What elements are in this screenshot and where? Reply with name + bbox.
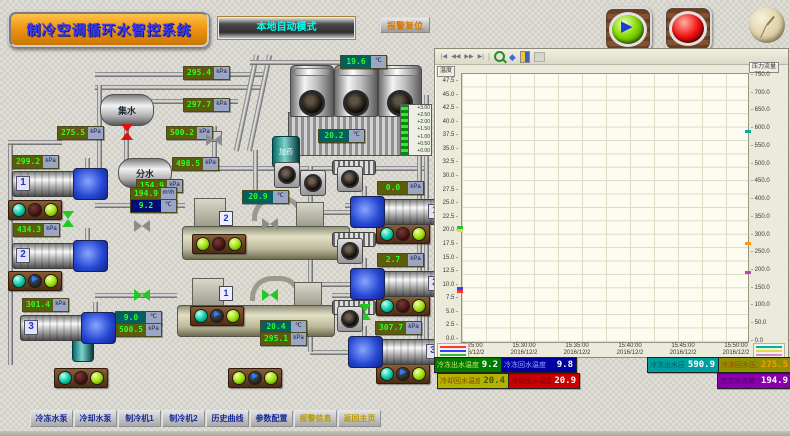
green-valve-icon[interactable] [62,211,74,227]
status-bar: 冷冻出水压力590.9 [647,357,719,373]
y-left-tick: 35.0 [436,146,458,153]
red-valve-icon[interactable] [121,124,133,140]
y-right-tick: 150.0 [751,285,781,292]
gray-valve-icon[interactable] [206,134,222,146]
gauge-tick: +3.00 [410,106,430,111]
status-bar: 冷冻回水温度9.8 [501,357,577,373]
display-unit: kPa [43,156,58,168]
tick-time: 15:40:00 [608,343,652,350]
display-value: 297.7 [184,99,214,111]
y-left-tick: 37.5 [436,132,458,139]
running-icon [396,367,410,381]
status-lamp-teal [12,274,26,288]
value-display: 299.2kPa [12,155,59,169]
tick-time: 15:50:00 [714,343,758,350]
y-left-tick: 42.5 [436,105,458,112]
status-bar-row1: 冷冻出水温度9.2冷冻回水温度9.8冷冻出水压力590.9冷冻回水压力275.5 [434,357,790,372]
distributor-tank-label: 分水 [136,167,154,180]
y-right-tick: 750.0 [751,72,781,79]
status-lamp-teal [380,299,394,313]
nav-button-2[interactable]: 冷却水泵 [74,410,117,427]
y-left-axis-label: 温度 [437,66,455,77]
pipe [95,72,263,77]
mode-display: 本地自动模式 [218,17,355,39]
window-bottom-edge [0,431,790,436]
display-value: 307.7 [376,322,406,334]
indicator-lights [376,364,430,384]
indicator-lights [192,234,246,254]
first-record-icon[interactable]: |◀ [441,52,447,62]
page-title: 制冷空调循环水智控系统 [27,20,192,40]
trend-chart-panel: |◀ ◀◀ ▶▶ ▶| | ◆ 温度 压力流量 47.545.042.540.0… [434,48,789,358]
value-display: 9.2℃ [130,199,177,213]
display-unit: kPa [214,67,229,79]
value-display: 0.0kPa [377,181,424,195]
display-unit: ℃ [371,56,386,68]
pump-head [73,240,108,272]
y-left-tick: 25.0 [436,200,458,207]
display-value: 275.5 [58,127,88,139]
legend-series-stripe [756,354,782,356]
gauge-tick: +1.50 [410,127,430,132]
nav-button-8[interactable]: 返回主页 [338,410,381,427]
y-left-tick: 20.0 [436,227,458,234]
display-value: 299.2 [13,156,43,168]
value-display: 2.7kPa [377,253,424,267]
display-value: 20.2 [319,130,349,142]
display-unit: kPa [408,182,423,194]
play-icon [609,12,647,47]
display-unit: kPa [53,299,68,311]
nav-button-4[interactable]: 制冷机2 [162,410,205,427]
y-right-tick: 250.0 [751,249,781,256]
y-right-tick: 400.0 [751,196,781,203]
display-value: 20.9 [243,191,273,203]
pipe [8,140,62,145]
status-bar-value: 20.4 [480,376,508,386]
process-diagram: +3.00+2.50+2.00+1.50+1.00+0.50+0.00 集水 分… [0,46,434,406]
tick-time: 15:30:00 [502,343,546,350]
status-bar-value: 590.9 [685,360,718,370]
nav-button-3[interactable]: 制冷机1 [118,410,161,427]
status-bar-label: 冷却出水温度 [509,376,551,386]
display-value: 295.4 [184,67,214,79]
status-bar-value: 9.2 [479,360,501,370]
hmi-screen: 制冷空调循环水智控系统 本地自动模式 报警复位 [0,0,790,436]
pump-head [350,268,385,300]
status-lamp-dark [28,203,42,217]
legend-series-stripe [756,346,782,348]
status-lamp-green [44,203,58,217]
series-current-marker [457,290,463,293]
tick-time: 15:35:00 [555,343,599,350]
y-left-tick: 17.5 [436,241,458,248]
green-valve-icon[interactable] [134,289,150,301]
basin-level-gauge: +3.00+2.50+2.00+1.50+1.00+0.50+0.00 [400,104,432,156]
y-right-tick: 500.0 [751,161,781,168]
series-current-marker [745,130,751,133]
status-bar: 冷却回水温度20.4 [437,373,509,389]
chiller2-panel [296,202,324,228]
stop-button[interactable] [664,6,712,51]
y-left-tick: 45.0 [436,92,458,99]
x-axis-tick: 15:30:002016/12/2 [502,343,546,356]
value-display: 19.6℃ [340,55,387,69]
pump-3[interactable]: 3 [348,336,444,366]
status-lamp-green [196,237,210,251]
series-current-marker [457,287,463,290]
status-bar-label: 冷冻水流量 [718,376,758,386]
gauge-tick: +2.50 [410,113,430,118]
y-left-tick: 32.5 [436,159,458,166]
value-display: 301.4kPa [22,298,69,312]
display-unit: kPa [44,224,59,236]
legend-series-stripe [756,350,782,352]
indicator-lights [376,224,430,244]
display-unit: kPa [406,322,421,334]
fan-motor-icon [274,162,300,188]
y-left-tick: 5.0 [436,309,458,316]
green-valve-icon[interactable] [262,289,278,301]
value-display: 20.9℃ [242,190,289,204]
status-bar-value: 194.9 [758,376,790,386]
status-lamp-green [226,309,240,323]
series-current-marker [457,229,463,232]
fan-motor-icon [337,306,363,332]
running-icon [28,274,42,288]
start-button[interactable] [604,7,652,52]
y-left-tick: 7.5 [436,295,458,302]
indicator-lights [8,271,62,291]
x-axis-tick: 15:35:002016/12/2 [555,343,599,356]
x-axis-tick: 15:40:002016/12/2 [608,343,652,356]
toolbar-separator: | [488,52,490,61]
pump-head [350,196,385,228]
indicator-lights [8,200,62,220]
display-unit: kPa [408,254,423,266]
nav-button-7[interactable]: 报警信息 [294,410,337,427]
display-value: 500.2 [167,127,197,139]
status-lamp-teal [194,309,208,323]
y-left-tick: 10.0 [436,282,458,289]
collector-tank-label: 集水 [118,104,136,117]
display-unit: kPa [214,99,229,111]
status-bar-label: 冷冻回水温度 [502,360,554,370]
series-current-marker [745,271,751,274]
tick-date: 2016/12/2 [661,350,705,356]
copy-icon [534,52,545,62]
pump-head [73,168,108,200]
chiller1-number: 1 [219,286,233,301]
dosing-tank-label: 加药 [279,147,293,157]
collector-tank[interactable]: 集水 [100,94,154,126]
status-bar-row2: 冷却回水温度20.4冷却出水温度20.9冷冻水流量194.9 [434,373,790,388]
status-lamp-green [90,371,104,385]
display-unit: kPa [146,324,161,336]
clock [749,7,785,43]
gauge-tick: +2.00 [410,120,430,125]
y-left-tick: 22.5 [436,214,458,221]
display-value: 19.6 [341,56,371,68]
tick-date: 2016/12/2 [502,350,546,356]
y-left-tick: 15.0 [436,255,458,262]
status-lamp-teal [380,367,394,381]
pump-2[interactable]: 2 [350,268,446,298]
legend-icon[interactable] [520,51,530,63]
status-lamp-teal [12,203,26,217]
display-value: 498.5 [173,158,203,170]
nav-button-5[interactable]: 历史曲线 [206,410,249,427]
y-right-tick: 700.0 [751,90,781,97]
status-lamp-green [44,274,58,288]
y-left-tick: 12.5 [436,268,458,275]
y-right-tick: 450.0 [751,178,781,185]
alarm-reset-button[interactable]: 报警复位 [380,17,430,33]
fan-icon [299,90,325,116]
pipe [95,85,263,90]
chiller2-number: 2 [219,211,233,226]
fan-motor-icon [300,170,326,196]
fan-icon [343,90,369,116]
status-lamp-teal [58,371,72,385]
indicator-lights [190,306,244,326]
nav-button-1[interactable]: 冷冻水泵 [30,410,73,427]
display-value: 434.3 [14,224,44,236]
status-bar-label: 冷却回水温度 [438,376,480,386]
legend-series-stripe [440,354,466,356]
stop-icon [669,11,707,46]
gauge-tick: +1.00 [410,135,430,140]
tick-date: 2016/12/2 [608,350,652,356]
fan-motor-icon [337,238,363,264]
gauge-tick: +0.50 [410,142,430,147]
rewind-icon[interactable]: ◀◀ [451,52,460,62]
app-title-banner: 制冷空调循环水智控系统 [8,11,210,48]
indicator-lights [376,296,430,316]
value-display: 20.2℃ [318,129,365,143]
status-bar: 冷冻水流量194.9 [717,373,790,389]
pump-1[interactable]: 1 [350,196,446,226]
pump-number: 1 [16,176,30,191]
status-bar-value: 9.8 [554,360,576,370]
y-right-tick: 600.0 [751,125,781,132]
tick-date: 2016/12/2 [555,350,599,356]
status-bar: 冷冻出水温度9.2 [434,357,502,373]
status-lamp-green [264,371,278,385]
y-right-tick: 200.0 [751,267,781,274]
gauge-tick: +0.00 [410,149,430,154]
status-bar-label: 冷冻回水压力 [719,360,758,370]
status-lamp-green [412,299,426,313]
series-current-marker [745,242,751,245]
y-right-tick: 350.0 [751,214,781,221]
status-lamp-green [412,227,426,241]
status-bar-value: 275.5 [758,360,790,370]
status-bar-label: 冷冻出水温度 [435,360,479,370]
status-bar: 冷冻回水压力275.5 [718,357,790,373]
value-display: 295.1kPa [260,332,307,346]
pump-2[interactable]: 2 [12,240,108,270]
display-value: 295.1 [261,333,291,345]
cooling-tower-2[interactable] [334,65,378,117]
plot-area[interactable] [461,73,749,343]
value-display: 275.5kPa [57,126,104,140]
pump-1[interactable]: 1 [12,168,108,198]
display-unit: kPa [203,158,218,170]
y-left-tick: 47.5 [436,78,458,85]
chart-toolbar: |◀ ◀◀ ▶▶ ▶| | ◆ [435,49,788,65]
y-right-tick: 100.0 [751,302,781,309]
forward-icon[interactable]: ▶▶ [464,52,473,62]
pump-3[interactable]: 3 [20,312,116,342]
last-record-icon[interactable]: ▶| [478,52,484,62]
display-value: 2.7 [378,254,408,266]
status-lamp-dark [74,371,88,385]
fan-motor-icon [337,166,363,192]
legend-series-stripe [440,350,466,352]
display-value: 9.2 [131,200,161,212]
y-left-tick: 40.0 [436,119,458,126]
display-value: 0.0 [378,182,408,194]
gray-valve-icon[interactable] [134,220,150,232]
y-right-tick: 50.0 [751,320,781,327]
series-current-marker [457,226,463,229]
running-icon [248,371,262,385]
indicator-lights [54,368,108,388]
pump-head [81,312,116,344]
pan-icon[interactable]: ◆ [509,52,516,62]
display-unit: ℃ [161,200,176,212]
x-axis-tick: 15:45:002016/12/2 [661,343,705,356]
status-lamp-green [232,371,246,385]
y-left-tick: 2.5 [436,322,458,329]
display-unit: ℃ [273,191,288,203]
y-left-tick: 27.5 [436,187,458,194]
status-lamp-teal [380,227,394,241]
zoom-icon[interactable] [494,51,505,62]
status-lamp-green [228,237,242,251]
value-display: 498.5kPa [172,157,219,171]
pump-number: 3 [24,320,38,335]
status-lamp-green [412,367,426,381]
display-unit: kPa [291,333,306,345]
status-lamp-dark [212,237,226,251]
value-display: 297.7kPa [183,98,230,112]
status-lamp-dark [396,299,410,313]
status-bar: 冷却出水温度20.9 [508,373,580,389]
pump-number: 2 [16,248,30,263]
value-display: 295.4kPa [183,66,230,80]
status-bar-label: 冷冻出水压力 [648,360,685,370]
status-lamp-dark [396,227,410,241]
pump-head [348,336,383,368]
y-left-tick: 0.0 [436,336,458,343]
y-right-tick: 300.0 [751,232,781,239]
indicator-lights [228,368,282,388]
nav-button-6[interactable]: 参数配置 [250,410,293,427]
tick-time: 15:45:00 [661,343,705,350]
y-right-tick: 650.0 [751,107,781,114]
gray-valve-icon[interactable] [262,218,278,230]
value-display: 307.7kPa [375,321,422,335]
value-display: 434.3kPa [13,223,60,237]
display-value: 301.4 [23,299,53,311]
display-unit: ℃ [349,130,364,142]
tick-date: 2016/12/2 [714,350,758,356]
legend-series-stripe [440,346,466,348]
cooling-tower-1[interactable] [290,65,334,117]
value-display: 500.5kPa [115,323,162,337]
display-value: 500.5 [116,324,146,336]
y-right-tick: 550.0 [751,143,781,150]
pipe [85,228,90,240]
y-left-tick: 30.0 [436,173,458,180]
running-icon [210,309,224,323]
status-bar-value: 20.9 [551,376,579,386]
x-axis-tick: 15:50:002016/12/2 [714,343,758,356]
display-unit: kPa [88,127,103,139]
level-bar [401,105,409,155]
level-gauge-ticks: +3.00+2.50+2.00+1.50+1.00+0.50+0.00 [409,105,431,155]
